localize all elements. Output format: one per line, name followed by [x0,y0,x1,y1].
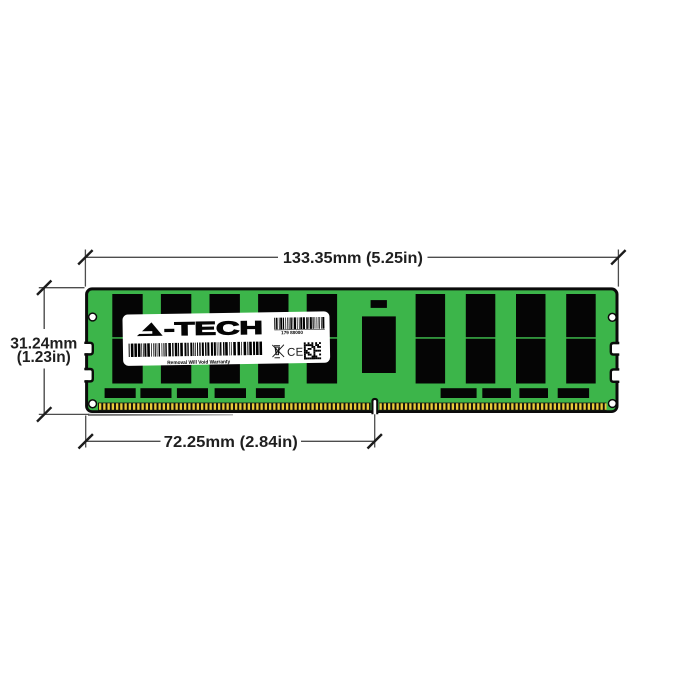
svg-text:CE: CE [287,347,304,359]
svg-text:179 88000: 179 88000 [281,330,303,335]
svg-text:133.35mm (5.25in): 133.35mm (5.25in) [283,250,423,267]
svg-text:72.25mm (2.84in): 72.25mm (2.84in) [164,434,298,451]
svg-text:-TECH: -TECH [164,317,263,340]
svg-text:Removal Will Void Warranty: Removal Will Void Warranty [167,359,230,366]
svg-text:(1.23in): (1.23in) [17,349,71,366]
